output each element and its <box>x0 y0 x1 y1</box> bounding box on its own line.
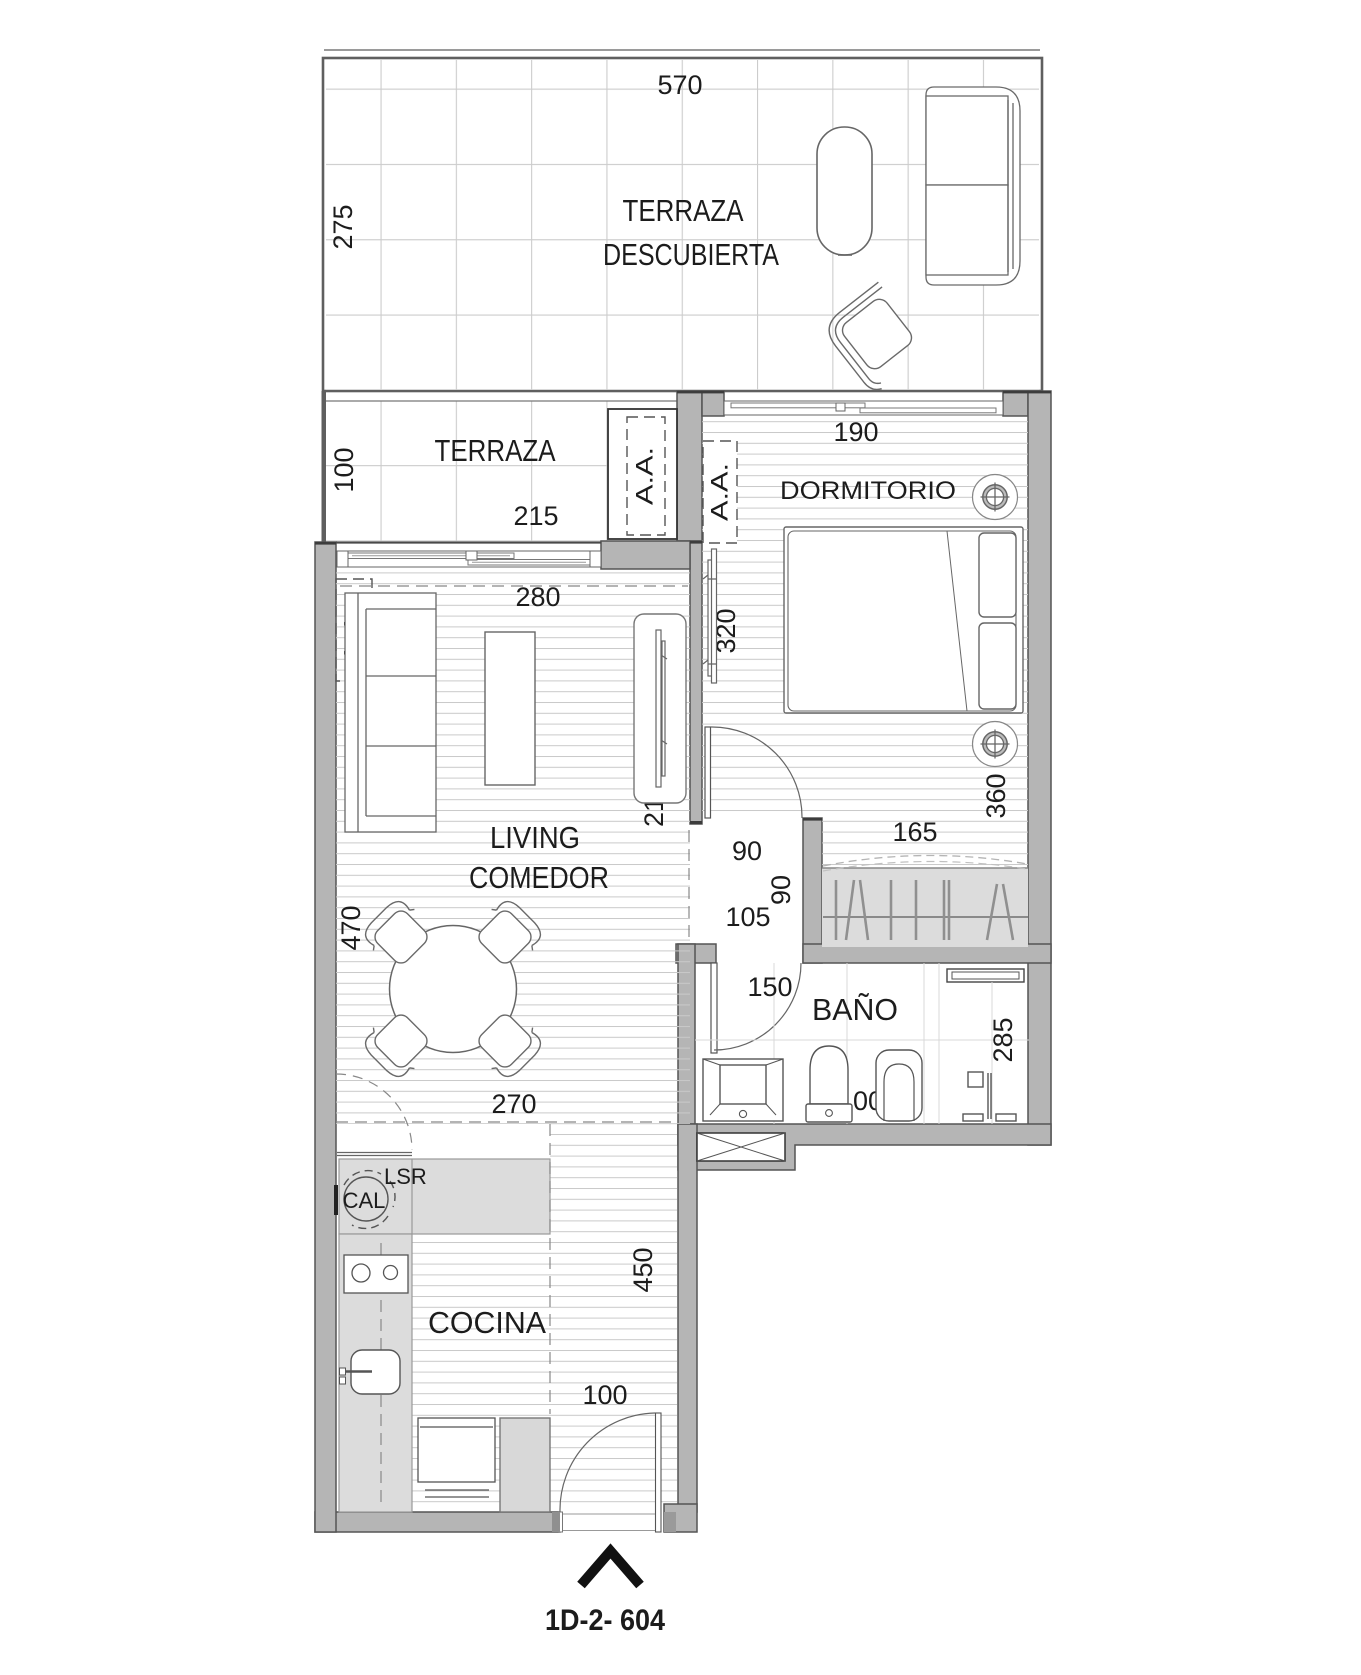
svg-text:190: 190 <box>833 417 878 447</box>
svg-text:90: 90 <box>766 875 796 905</box>
svg-text:150: 150 <box>747 972 792 1002</box>
svg-text:COMEDOR: COMEDOR <box>469 860 609 895</box>
svg-text:165: 165 <box>892 817 937 847</box>
svg-text:470: 470 <box>336 905 366 950</box>
svg-text:DORMITORIO: DORMITORIO <box>780 477 956 505</box>
svg-text:A.A.: A.A. <box>631 447 658 505</box>
svg-text:1D-2- 604: 1D-2- 604 <box>545 1604 665 1637</box>
svg-text:360: 360 <box>981 773 1011 818</box>
svg-text:CAL: CAL <box>343 1188 386 1213</box>
svg-text:LSR: LSR <box>384 1164 427 1189</box>
svg-text:275: 275 <box>328 204 358 249</box>
svg-text:570: 570 <box>657 70 702 100</box>
svg-text:105: 105 <box>725 902 770 932</box>
svg-text:TERRAZA: TERRAZA <box>435 433 556 468</box>
svg-text:90: 90 <box>732 836 762 866</box>
svg-text:450: 450 <box>628 1247 658 1292</box>
svg-text:280: 280 <box>515 582 560 612</box>
svg-text:A.A.: A.A. <box>706 463 733 521</box>
svg-text:TERRAZA: TERRAZA <box>623 193 744 228</box>
svg-text:LIVING: LIVING <box>490 820 580 855</box>
svg-text:215: 215 <box>513 501 558 531</box>
svg-text:285: 285 <box>988 1017 1018 1062</box>
svg-text:DESCUBIERTA: DESCUBIERTA <box>603 237 779 272</box>
svg-text:COCINA: COCINA <box>428 1305 546 1340</box>
svg-text:100: 100 <box>582 1380 627 1410</box>
svg-text:100: 100 <box>329 447 359 492</box>
svg-text:BAÑO: BAÑO <box>812 992 898 1027</box>
svg-text:270: 270 <box>491 1089 536 1119</box>
